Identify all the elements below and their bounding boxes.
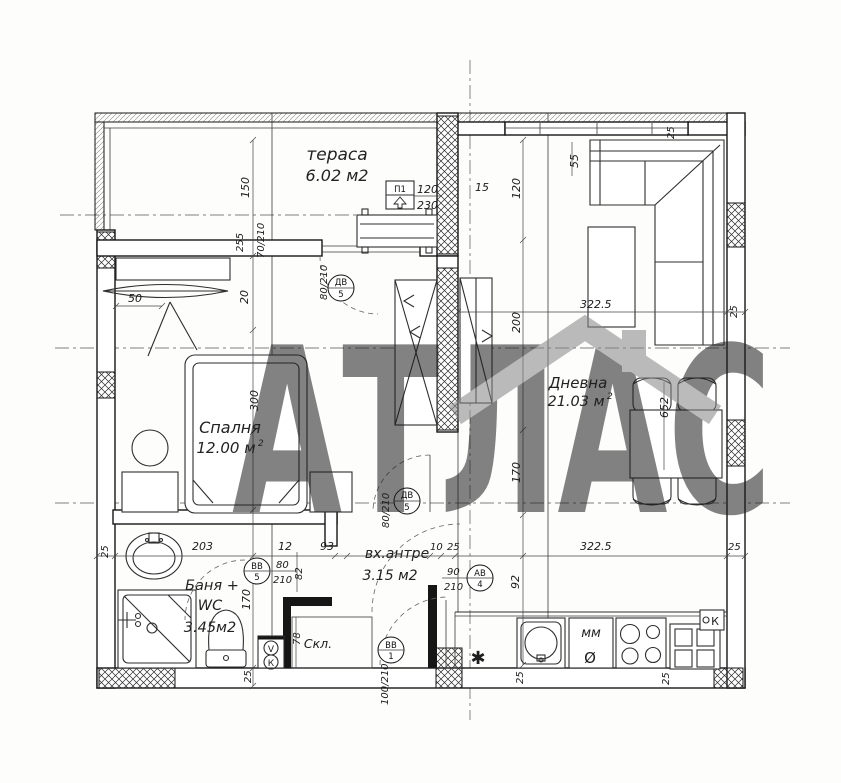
dim-25: 25 xyxy=(243,670,254,683)
dim-120: 120 xyxy=(510,178,523,199)
kitchen-sink xyxy=(517,618,565,668)
kitchen-cabinet xyxy=(670,624,720,669)
watermark: АТЛАС xyxy=(232,300,772,567)
bathroom-door-index: 5 xyxy=(254,573,259,583)
bathroom-name-1: Баня + xyxy=(185,578,239,594)
wall-hatch xyxy=(436,648,462,688)
balcony-door-code: ДВ xyxy=(335,278,348,288)
living-door-width: 90 xyxy=(447,567,460,578)
wall-hatch xyxy=(99,668,175,688)
stool xyxy=(132,430,168,466)
p1-code: П1 xyxy=(394,185,406,195)
storage-name: Скл. xyxy=(304,636,332,651)
entrance-door-index: 1 xyxy=(388,652,393,662)
washer-label: мм xyxy=(581,626,601,641)
door-marker-living: 90 210 АВ 4 xyxy=(442,565,493,593)
wall-living-top-left xyxy=(453,122,505,135)
dim-50: 50 xyxy=(128,292,142,305)
ac-unit xyxy=(357,209,437,253)
vent-shaft-label: V xyxy=(268,645,275,655)
nightstand-left xyxy=(122,472,178,512)
window-living xyxy=(505,122,688,135)
entrance-door-code: ВВ xyxy=(385,641,397,651)
window-marker-p1: П1 120 230 xyxy=(386,181,442,212)
dim-92: 92 xyxy=(509,575,522,589)
dim-82: 82 xyxy=(294,567,305,580)
dim-25: 25 xyxy=(515,671,526,684)
dim-55: 55 xyxy=(568,154,581,168)
wall-hatch xyxy=(714,668,743,688)
wall-terrace-left xyxy=(95,122,104,230)
dim-25: 25 xyxy=(666,126,677,139)
toilet xyxy=(206,610,246,667)
boiler-label: К xyxy=(711,615,719,628)
dim-203: 203 xyxy=(192,540,213,553)
dim-25: 25 xyxy=(100,545,111,558)
wall-terrace-bedroom xyxy=(97,240,322,256)
wall-bathroom-lintel xyxy=(283,597,332,606)
bathroom-area: 3.45м2 xyxy=(184,620,236,636)
sewer-shaft-label: К xyxy=(268,659,275,669)
floor-plan-drawing: 150 255 70/210 20 50 300 170 25 25 203 1… xyxy=(0,0,841,783)
kitchen-stove xyxy=(616,618,666,668)
bathroom-door-height: 210 xyxy=(273,575,292,586)
dim-78: 78 xyxy=(292,632,303,645)
living-door-height: 210 xyxy=(444,582,463,593)
floor-plan-sheet: 150 255 70/210 20 50 300 170 25 25 203 1… xyxy=(0,0,841,783)
terrace-name: тераса xyxy=(306,145,367,165)
wall-living-top-insulation xyxy=(453,113,745,122)
living-door-code: АВ xyxy=(474,569,486,579)
wall-hatch xyxy=(97,372,115,398)
wall-hatch xyxy=(437,116,458,254)
diameter-icon: Ø xyxy=(584,649,596,667)
p1-height: 230 xyxy=(417,199,438,212)
bathroom-name-2: WC xyxy=(198,598,223,614)
dim-70-210: 70/210 xyxy=(256,223,267,258)
dim-15: 15 xyxy=(475,181,489,194)
watermark-chimney-icon xyxy=(622,330,646,372)
star-icon: ✱ xyxy=(470,648,485,669)
wardrobe-bedroom xyxy=(103,258,230,356)
balcony-door-size: 80/210 xyxy=(319,265,330,300)
entrance-door-size: 100/210 xyxy=(380,663,391,705)
dim-150: 150 xyxy=(239,177,252,198)
p1-width: 120 xyxy=(417,183,438,196)
dim-170-bath: 170 xyxy=(240,589,253,610)
hall-area: 3.15 м2 xyxy=(362,568,417,584)
balcony-door-index: 5 xyxy=(338,290,343,300)
door-marker-balcony: 80/210 ДВ 5 xyxy=(319,265,354,301)
wall-terrace-top xyxy=(95,113,455,122)
terrace-area: 6.02 м2 xyxy=(306,166,369,185)
wall-hatch xyxy=(727,203,745,247)
wall-bottom xyxy=(97,668,745,688)
dim-255: 255 xyxy=(235,233,246,252)
living-door-index: 4 xyxy=(477,580,482,590)
wall-left xyxy=(97,230,115,688)
dim-25: 25 xyxy=(661,672,672,685)
watermark-brand: АТЛАС xyxy=(232,300,772,567)
